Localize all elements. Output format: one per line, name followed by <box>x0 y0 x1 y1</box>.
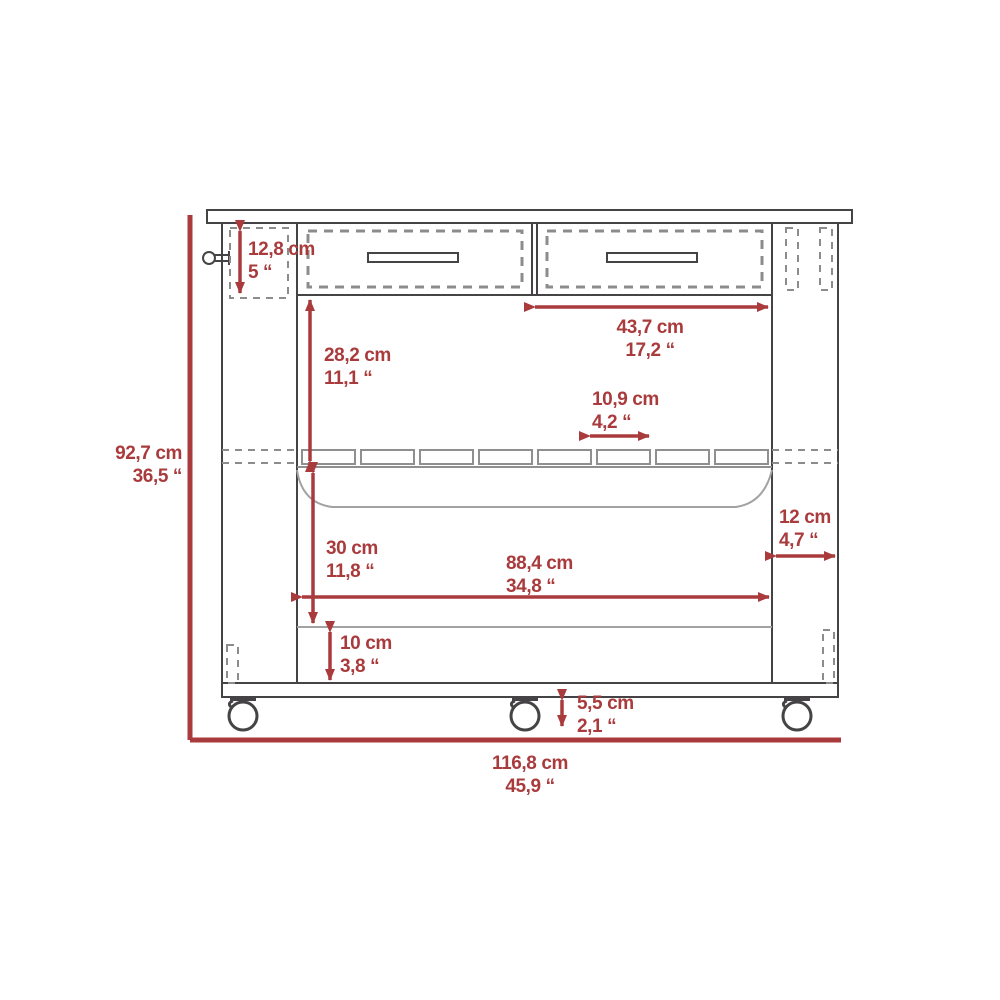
right-foot-hidden <box>823 630 834 683</box>
overall-height-cm: 92,7 cm <box>70 442 182 465</box>
overall-height-inch: 36,5 “ <box>70 465 182 488</box>
base-panel <box>222 683 838 697</box>
slat-width-label: 10,9 cm 4,2 “ <box>592 388 659 434</box>
caster-wheel-left <box>229 699 257 730</box>
drawer-width-cm: 43,7 cm <box>555 316 745 339</box>
top-to-rack-label: 28,2 cm 11,1 “ <box>324 344 391 390</box>
slat-rack <box>297 450 772 467</box>
drawer-width-label: 43,7 cm 17,2 “ <box>555 316 745 362</box>
drawer-width-inch: 17,2 “ <box>555 339 745 362</box>
overall-width-label: 116,8 cm 45,9 “ <box>430 752 630 798</box>
top-to-rack-inch: 11,1 “ <box>324 367 391 390</box>
drawer-right <box>547 231 762 287</box>
inner-width-cm: 88,4 cm <box>506 552 573 575</box>
shelf-height-inch: 11,8 “ <box>326 560 378 583</box>
base-height-label: 10 cm 3,8 “ <box>340 632 392 678</box>
right-rail-hidden-2 <box>820 228 832 290</box>
base-height-inch: 3,8 “ <box>340 655 392 678</box>
overall-width-inch: 45,9 “ <box>430 775 630 798</box>
inner-width-inch: 34,8 “ <box>506 575 573 598</box>
drawer-height-label: 12,8 cm 5 “ <box>248 238 315 284</box>
right-rail-hidden-1 <box>786 228 798 290</box>
drawer-height-inch: 5 “ <box>248 261 315 284</box>
left-side-panel <box>222 223 297 683</box>
towel-knob <box>203 251 229 265</box>
side-depth-cm: 12 cm <box>779 506 831 529</box>
drawer-right-handle <box>607 253 697 262</box>
caster-wheel-center <box>511 699 539 730</box>
inner-width-label: 88,4 cm 34,8 “ <box>506 552 573 598</box>
base-height-cm: 10 cm <box>340 632 392 655</box>
furniture-dimension-diagram: 92,7 cm 36,5 “ 116,8 cm 45,9 “ 12,8 cm 5… <box>0 0 1000 1000</box>
shelf-height-label: 30 cm 11,8 “ <box>326 537 378 583</box>
line-drawing <box>0 0 1000 1000</box>
overall-height-label: 92,7 cm 36,5 “ <box>70 442 182 488</box>
right-side-panel <box>772 223 838 683</box>
apron-rail <box>297 470 772 507</box>
top-to-rack-cm: 28,2 cm <box>324 344 391 367</box>
caster-height-inch: 2,1 “ <box>577 715 634 738</box>
caster-height-label: 5,5 cm 2,1 “ <box>577 692 634 738</box>
overall-width-cm: 116,8 cm <box>430 752 630 775</box>
slat-width-inch: 4,2 “ <box>592 411 659 434</box>
drawer-height-cm: 12,8 cm <box>248 238 315 261</box>
shelf-height-cm: 30 cm <box>326 537 378 560</box>
drawer-left-handle <box>368 253 458 262</box>
side-depth-inch: 4,7 “ <box>779 529 831 552</box>
left-foot-hidden <box>227 645 238 683</box>
side-depth-label: 12 cm 4,7 “ <box>779 506 831 552</box>
slat-width-cm: 10,9 cm <box>592 388 659 411</box>
caster-height-cm: 5,5 cm <box>577 692 634 715</box>
countertop <box>207 210 852 223</box>
drawer-left <box>308 231 522 287</box>
caster-wheel-right <box>783 699 811 730</box>
